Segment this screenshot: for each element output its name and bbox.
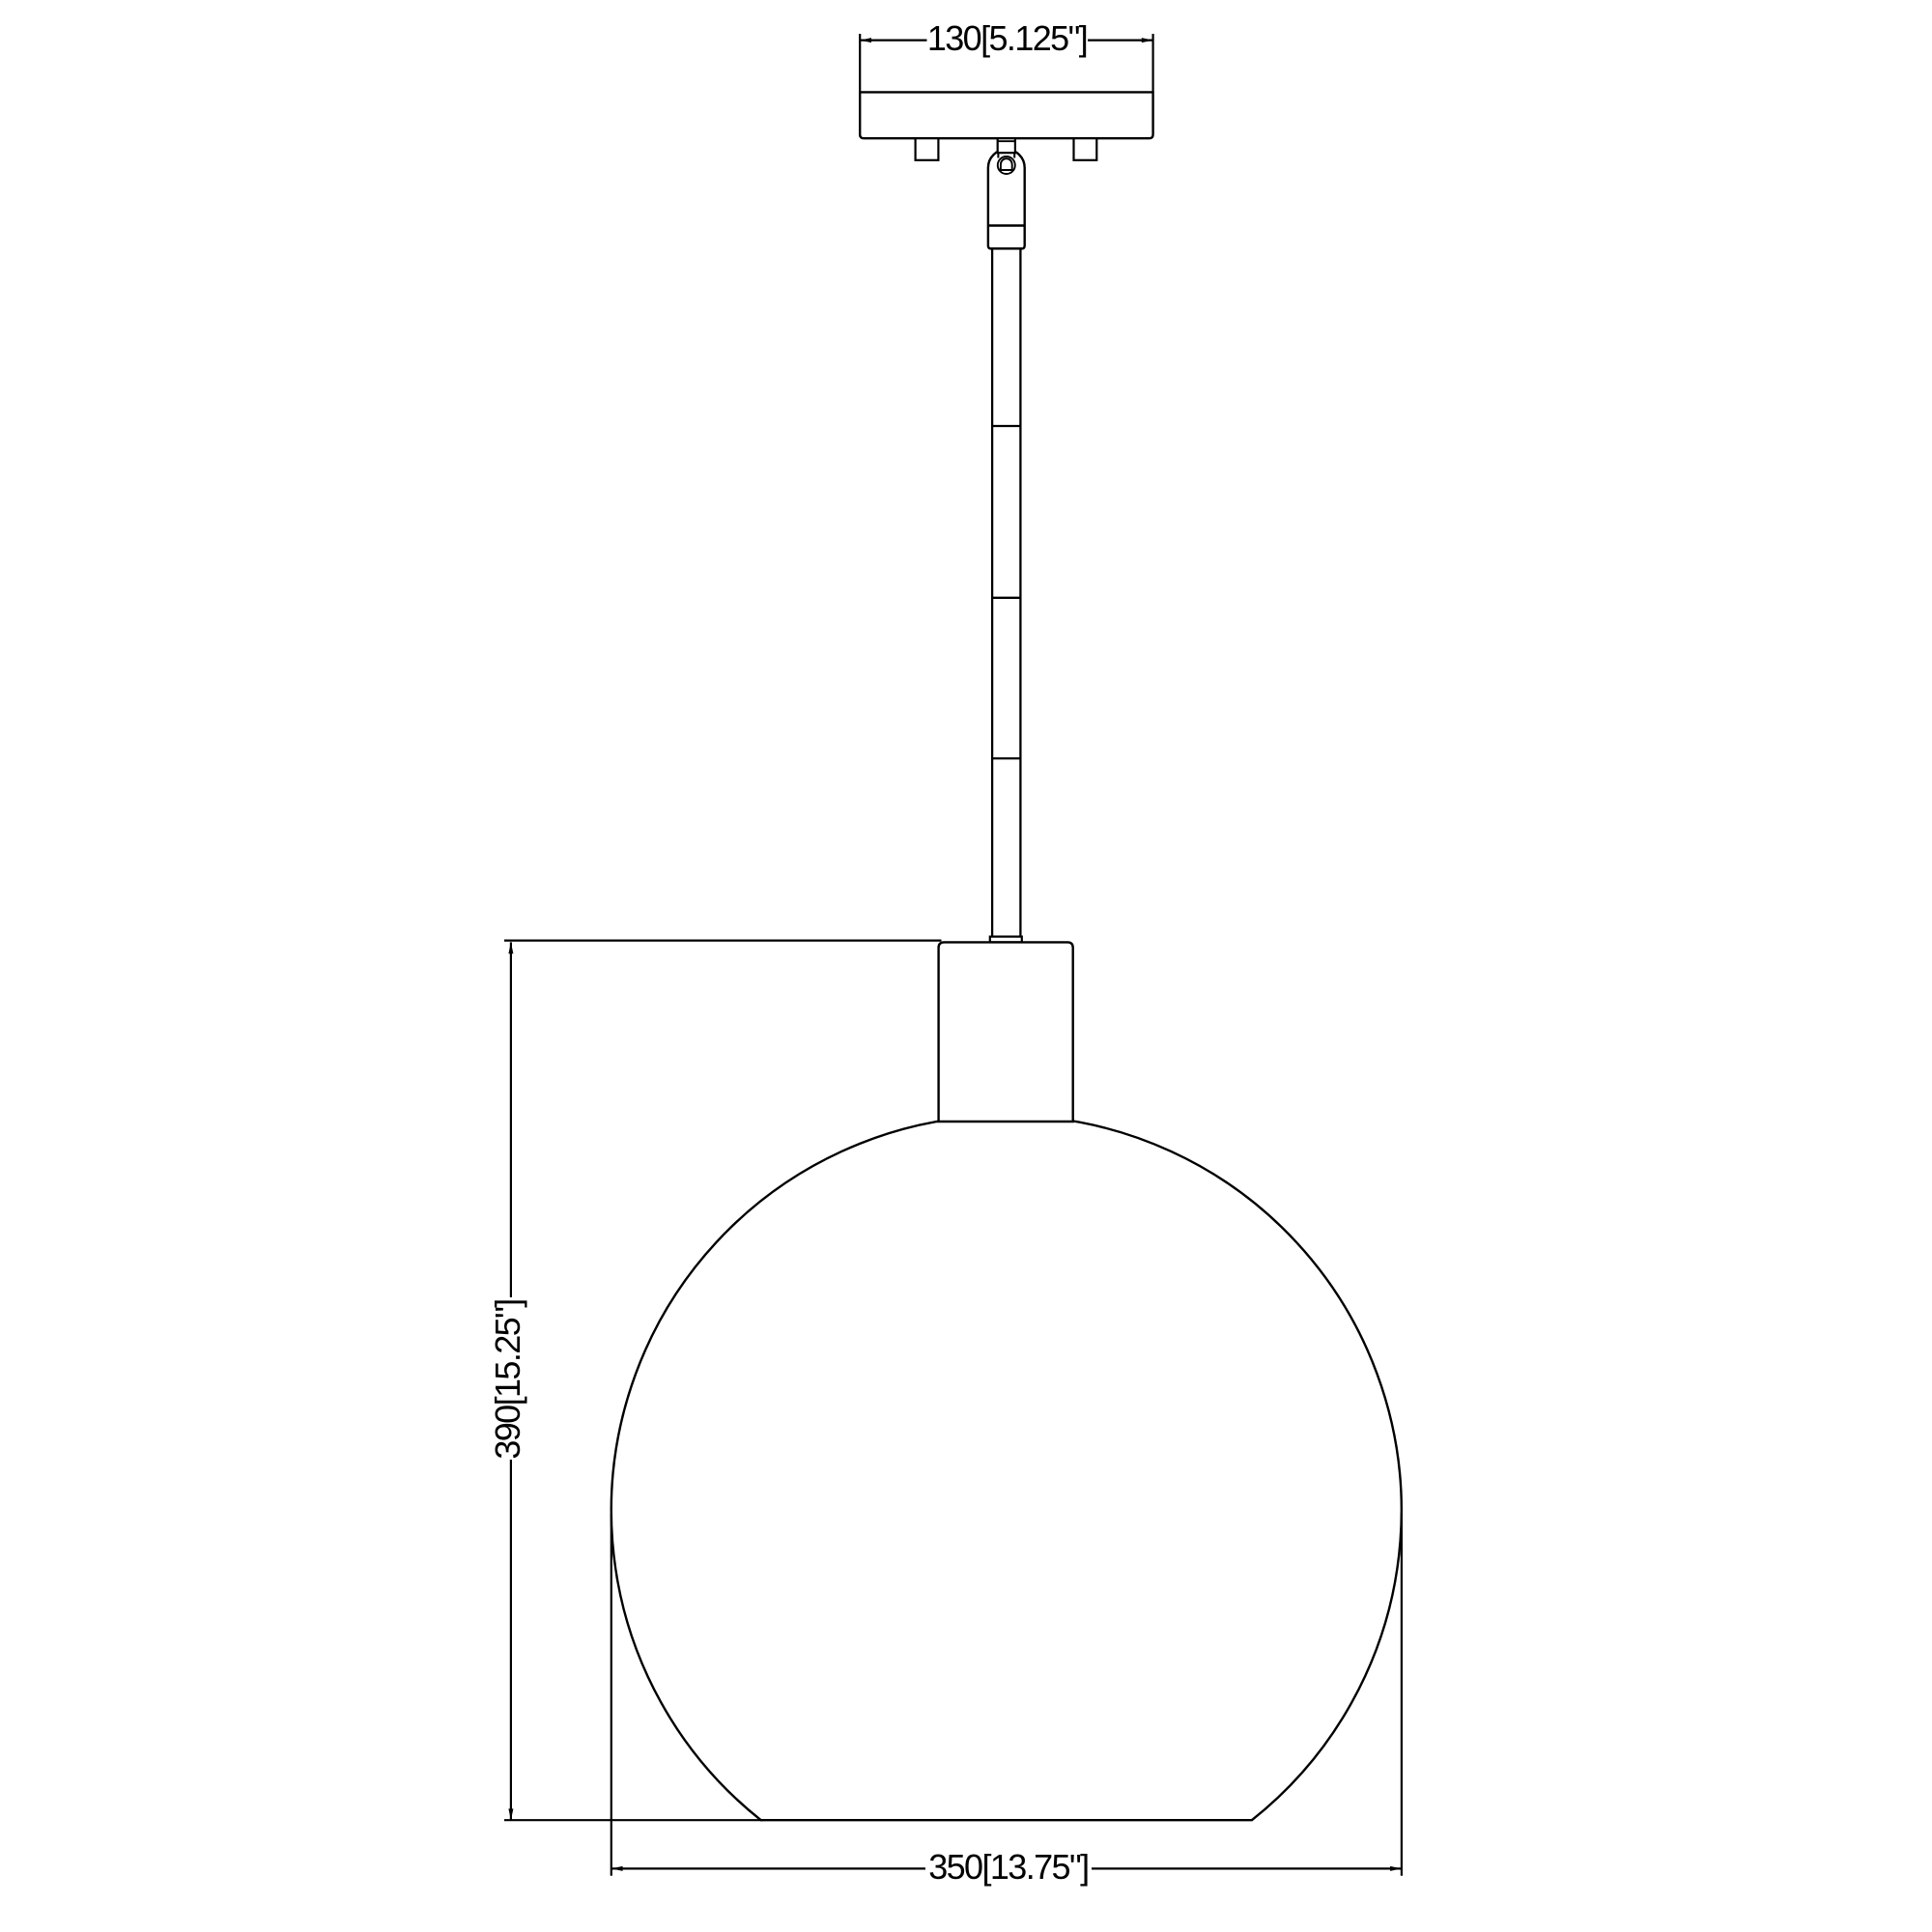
svg-text:130[5.125"]: 130[5.125"] — [927, 18, 1087, 58]
svg-text:350[13.75"]: 350[13.75"] — [928, 1847, 1088, 1887]
svg-text:390[15.25"]: 390[15.25"] — [488, 1299, 527, 1459]
